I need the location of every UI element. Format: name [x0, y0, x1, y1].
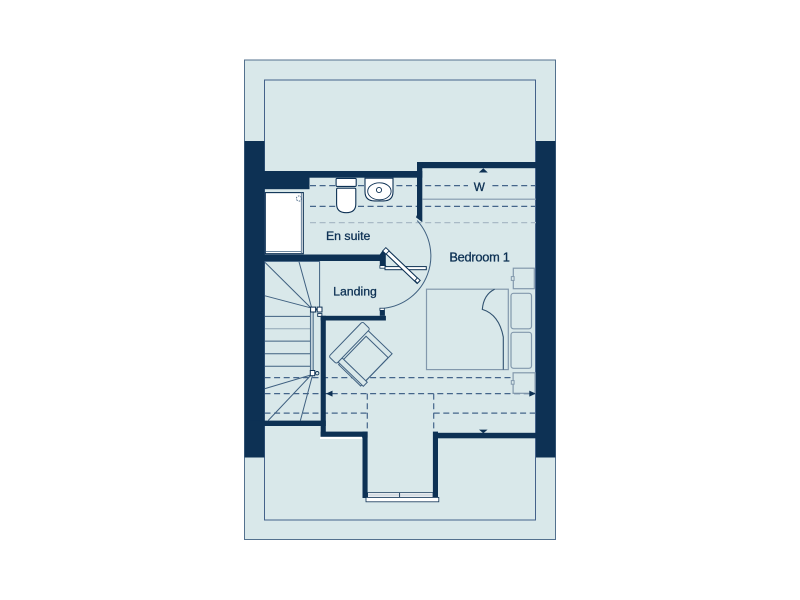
svg-text:Bedroom 1: Bedroom 1	[449, 249, 509, 264]
svg-text:Landing: Landing	[333, 284, 377, 298]
svg-text:W: W	[474, 180, 486, 194]
svg-text:En suite: En suite	[326, 229, 371, 243]
